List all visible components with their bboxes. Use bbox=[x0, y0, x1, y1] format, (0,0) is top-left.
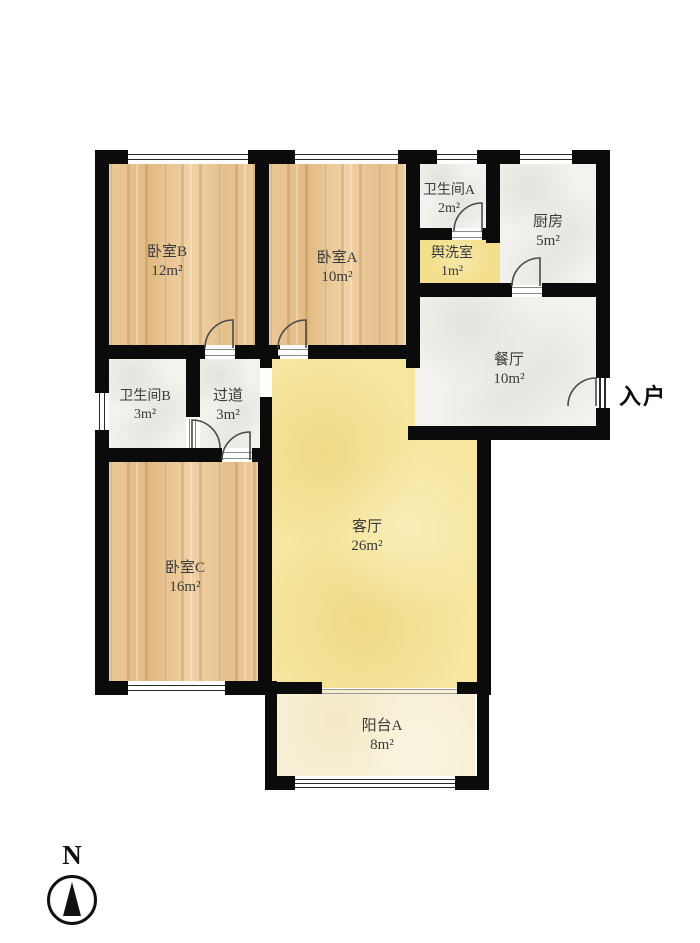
door-corridor bbox=[222, 432, 250, 460]
compass: N bbox=[40, 840, 104, 925]
room-label-bedroom-b: 卧室B 12m² bbox=[147, 243, 187, 281]
room-name: 卧室A bbox=[317, 249, 358, 268]
room-name: 过道 bbox=[213, 387, 243, 406]
room-area: 3m² bbox=[119, 406, 170, 424]
room-area: 5m² bbox=[533, 232, 563, 251]
room-area: 1m² bbox=[431, 263, 473, 281]
room-label-bathroom-a: 卫生间A 2m² bbox=[423, 182, 475, 218]
compass-north-label: N bbox=[40, 840, 104, 871]
compass-icon bbox=[47, 875, 97, 925]
doors-layer bbox=[0, 0, 700, 943]
room-area: 10m² bbox=[493, 370, 524, 389]
room-name: 厨房 bbox=[533, 213, 563, 232]
room-name: 舆洗室 bbox=[431, 245, 473, 263]
room-label-living: 客厅 26m² bbox=[351, 518, 382, 556]
room-area: 26m² bbox=[351, 537, 382, 556]
room-label-kitchen: 厨房 5m² bbox=[533, 213, 563, 251]
floor-plan: 卧室B 12m² 卧室A 10m² 卫生间A 2m² 厨房 5m² 舆洗室 1m… bbox=[0, 0, 700, 943]
north-arrow-icon bbox=[63, 882, 81, 916]
room-label-balcony: 阳台A 8m² bbox=[362, 717, 403, 755]
room-area: 10m² bbox=[317, 268, 358, 287]
room-label-dining: 餐厅 10m² bbox=[493, 351, 524, 389]
room-label-bathroom-b: 卫生间B 3m² bbox=[119, 388, 170, 424]
room-name: 卫生间B bbox=[119, 388, 170, 406]
room-area: 2m² bbox=[423, 200, 475, 218]
room-name: 卫生间A bbox=[423, 182, 475, 200]
door-bedroom-a bbox=[278, 320, 306, 348]
room-area: 8m² bbox=[362, 736, 403, 755]
room-name: 卧室C bbox=[165, 559, 205, 578]
room-area: 16m² bbox=[165, 578, 205, 597]
room-name: 阳台A bbox=[362, 717, 403, 736]
room-area: 3m² bbox=[213, 406, 243, 425]
room-label-bedroom-c: 卧室C 16m² bbox=[165, 559, 205, 597]
room-label-bedroom-a: 卧室A 10m² bbox=[317, 249, 358, 287]
room-label-corridor: 过道 3m² bbox=[213, 387, 243, 425]
room-area: 12m² bbox=[147, 262, 187, 281]
door-bedroom-b bbox=[205, 320, 233, 348]
entrance-label: 入户 bbox=[619, 379, 667, 411]
door-entrance bbox=[568, 378, 596, 406]
room-label-washroom: 舆洗室 1m² bbox=[431, 245, 473, 281]
room-name: 客厅 bbox=[351, 518, 382, 537]
room-name: 餐厅 bbox=[493, 351, 524, 370]
room-name: 卧室B bbox=[147, 243, 187, 262]
door-kitchen bbox=[512, 258, 540, 286]
